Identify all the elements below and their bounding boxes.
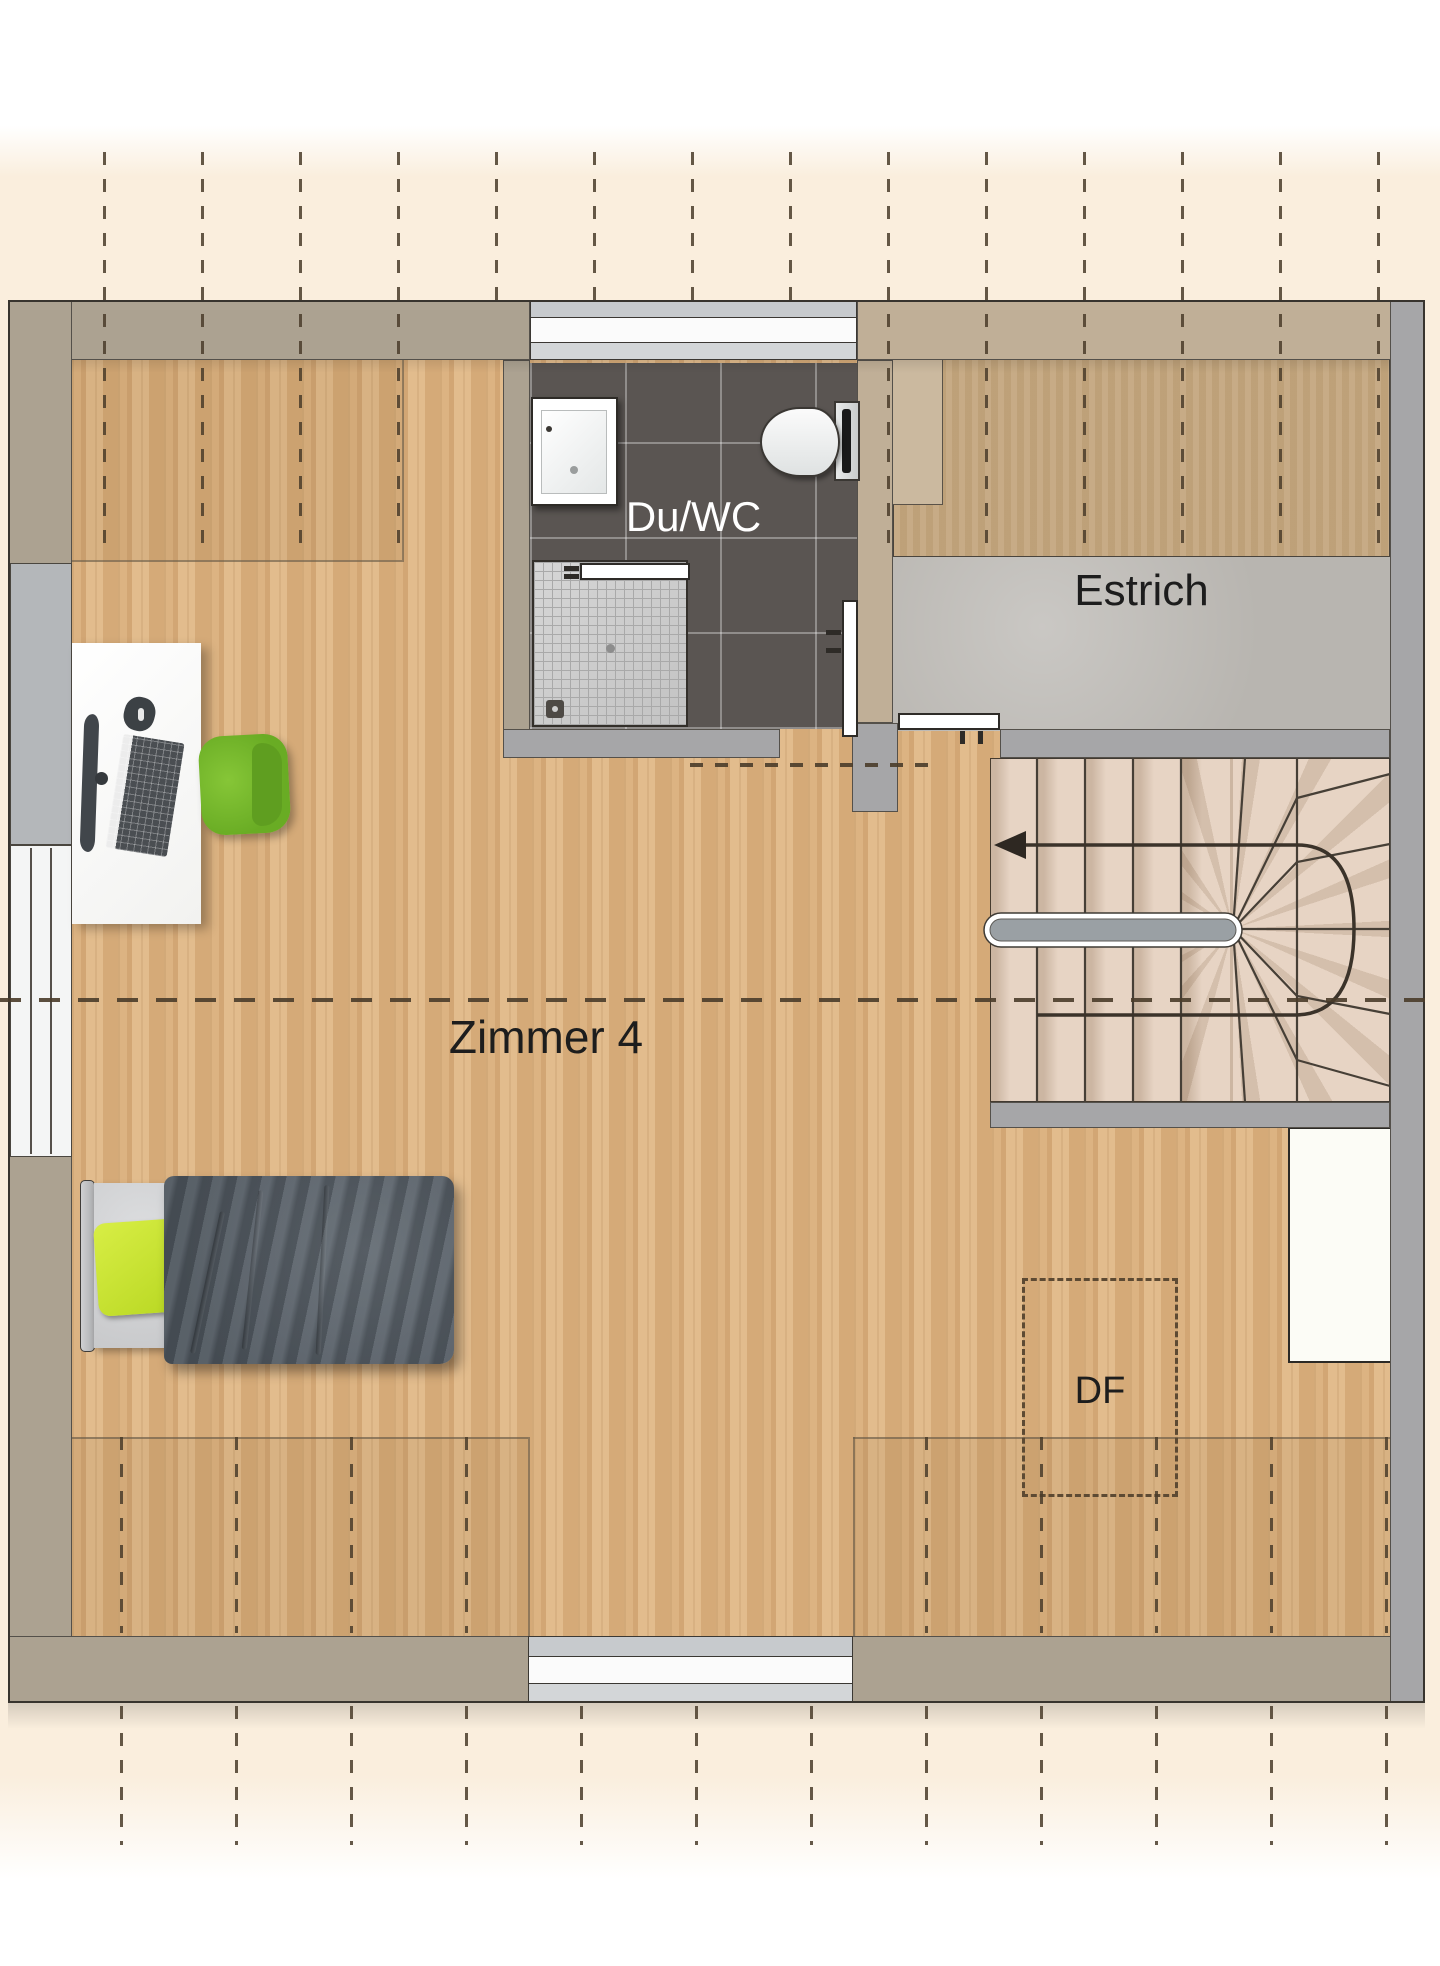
guide-dash xyxy=(1040,1437,1043,1633)
bathroom-label: Du/WC xyxy=(530,493,857,541)
guide-dash xyxy=(120,1706,123,1845)
wall-shadow-bottom xyxy=(8,1703,1425,1729)
floorplan-canvas: Du/WC Estrich Zimmer 4 DF xyxy=(0,0,1440,1966)
guide-dash xyxy=(985,152,988,557)
guide-dash xyxy=(1279,152,1282,557)
guide-dash xyxy=(350,1706,353,1845)
guide-dash xyxy=(235,1437,238,1633)
roof-window-label: DF xyxy=(1022,1370,1178,1413)
guide-dash xyxy=(1270,1706,1273,1845)
guide-dash xyxy=(299,152,302,557)
guide-dash xyxy=(1040,1706,1043,1845)
estrich-label: Estrich xyxy=(893,566,1390,616)
guide-dash xyxy=(593,152,596,302)
guide-dash xyxy=(789,152,792,302)
threshold-dash-line xyxy=(690,763,938,767)
zimmer4-label: Zimmer 4 xyxy=(336,1010,756,1064)
guide-dash xyxy=(925,1706,928,1845)
guide-dash xyxy=(235,1706,238,1845)
guide-dash xyxy=(495,152,498,302)
guide-dash xyxy=(350,1437,353,1633)
guide-dash xyxy=(103,152,106,557)
guide-dash xyxy=(465,1437,468,1633)
guide-dash xyxy=(1155,1706,1158,1845)
guide-dash xyxy=(887,152,890,557)
guide-dash xyxy=(1155,1437,1158,1633)
guide-dash xyxy=(1385,1437,1388,1633)
guide-dash xyxy=(397,152,400,557)
guide-dash xyxy=(925,1437,928,1633)
guide-dash xyxy=(1083,152,1086,557)
guide-dash xyxy=(695,1706,698,1845)
guide-dash xyxy=(1385,1706,1388,1845)
section-dash-line xyxy=(0,998,1440,1002)
guide-dash xyxy=(580,1706,583,1845)
guide-dash xyxy=(810,1706,813,1845)
guide-dash xyxy=(1181,152,1184,557)
guide-dash xyxy=(1270,1437,1273,1633)
guide-dash xyxy=(691,152,694,302)
guide-dash xyxy=(465,1706,468,1845)
guide-dash xyxy=(1377,152,1380,557)
guide-dash xyxy=(201,152,204,557)
guide-dash xyxy=(120,1437,123,1633)
